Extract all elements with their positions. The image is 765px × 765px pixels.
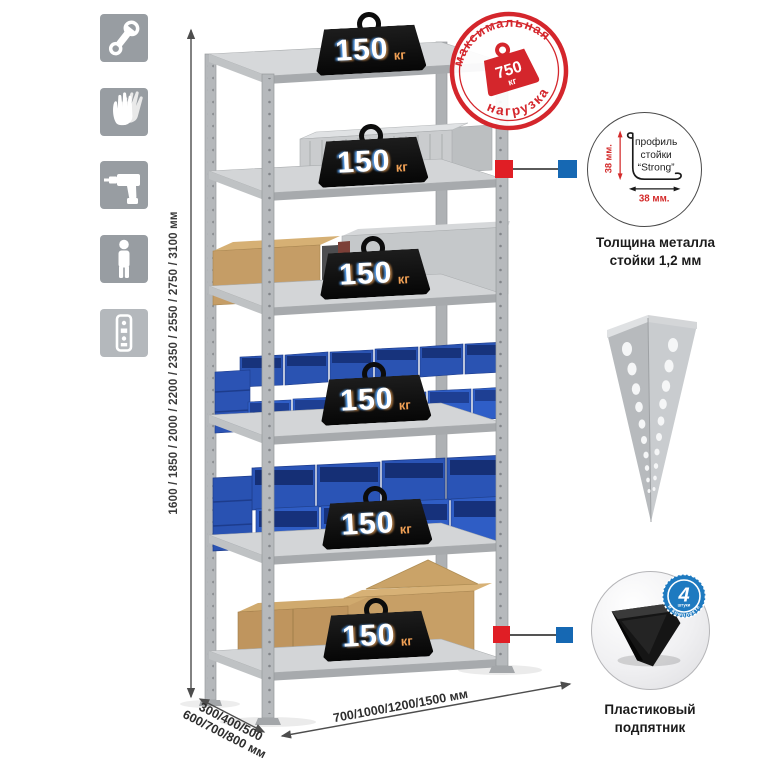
weight-badge-shelf-5: 150кг [319,483,432,550]
weight-value: 150 [339,256,394,293]
red-marker [495,160,513,178]
blue-marker [556,627,573,643]
kit-count-badge: 4 штуки в комплекте [661,573,707,619]
weight-unit: кг [397,271,410,287]
kit-count-sub: штуки [678,603,691,608]
weight-badge-shelf-3: 150кг [317,233,430,300]
angle-profile-image [607,315,697,522]
weight-unit: кг [399,521,412,537]
caption-line: Толщина металла [578,234,733,252]
weight-value: 150 [340,382,395,419]
weight-unit: кг [398,397,411,413]
caption-line: стойки 1,2 мм [578,252,733,270]
weight-badge-shelf-4: 150кг [318,359,431,426]
weight-unit: кг [393,47,406,63]
blue-marker [558,160,577,178]
callout-connector-bottom [493,626,573,643]
weight-unit: кг [400,633,413,649]
metal-thickness-caption: Толщина металла стойки 1,2 мм [578,234,733,269]
weight-badge-shelf-6: 150кг [320,595,433,662]
weight-value: 150 [342,618,397,655]
weight-badge-shelf-1: 150кг [313,9,426,76]
weight-badge-shelf-2: 150кг [315,121,428,188]
product-infographic: 1600 / 1850 / 2000 / 2200 / 2350 / 2550 … [0,0,765,765]
weight-value: 150 [341,506,396,543]
caption-line: подпятник [585,719,715,737]
weight-value: 150 [337,144,392,181]
caption-line: Пластиковый [585,701,715,719]
weight-unit: кг [395,159,408,175]
red-marker [493,626,510,643]
callout-connector-top [495,160,577,178]
weight-value: 150 [335,32,390,69]
plastic-foot-caption: Пластиковый подпятник [585,701,715,736]
